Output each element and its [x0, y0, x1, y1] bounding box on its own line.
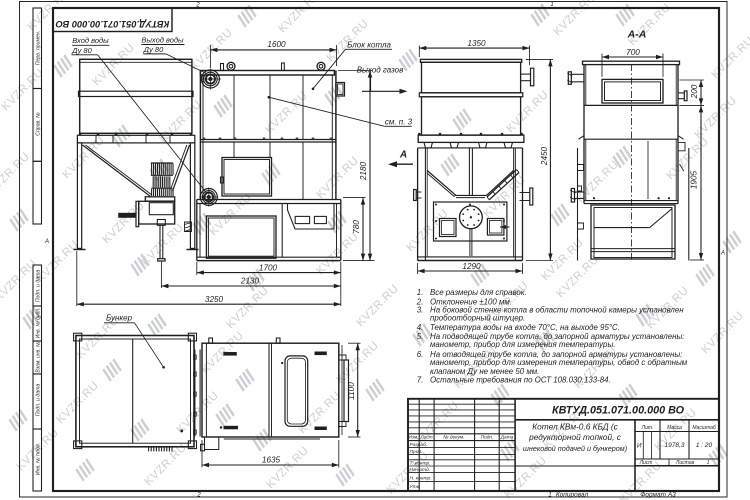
- svg-text:Котел КВм-0,6 КБД (с: Котел КВм-0,6 КБД (с: [532, 422, 618, 432]
- svg-text:И: И: [637, 443, 642, 450]
- svg-text:7.: 7.: [417, 376, 424, 385]
- svg-text:редукторной топкой, с: редукторной топкой, с: [528, 432, 622, 442]
- svg-text:А: А: [44, 239, 49, 245]
- svg-text:4.: 4.: [417, 323, 424, 332]
- svg-text:Масштаб: Масштаб: [692, 425, 716, 431]
- svg-text:Нач.отд.: Нач.отд.: [410, 467, 431, 473]
- svg-text:Ду 80: Ду 80: [71, 46, 92, 55]
- svg-text:Изм.: Изм.: [408, 435, 418, 441]
- svg-text:см. п. 3: см. п. 3: [385, 118, 413, 127]
- svg-text:1905: 1905: [689, 170, 698, 189]
- svg-text:Справ. №: Справ. №: [36, 112, 42, 136]
- svg-text:1635: 1635: [262, 456, 281, 465]
- svg-text:1: 1: [707, 460, 710, 466]
- svg-text:6.: 6.: [417, 350, 424, 359]
- svg-text:2: 2: [195, 3, 200, 9]
- svg-text:Вход воды: Вход воды: [72, 36, 109, 45]
- svg-text:Лит.: Лит.: [641, 425, 654, 431]
- svg-text:Бункер: Бункер: [106, 314, 133, 323]
- svg-text:манометр, прибор для измерения: манометр, прибор для измерения температу…: [430, 340, 615, 349]
- svg-text:Т. контр.: Т. контр.: [410, 461, 431, 467]
- svg-text:1978,3: 1978,3: [665, 442, 685, 449]
- svg-text:Утв.: Утв.: [410, 484, 421, 490]
- svg-text:700: 700: [626, 48, 640, 57]
- svg-text:Инв. № подл.: Инв. № подл.: [36, 443, 42, 475]
- svg-text:Остальные требования по ОСТ 10: Остальные требования по ОСТ 108.030.133-…: [430, 376, 611, 385]
- svg-text:Инв. № дубл.: Инв. № дубл.: [36, 308, 42, 339]
- svg-text:2130: 2130: [240, 277, 260, 286]
- svg-text:Ду 80: Ду 80: [143, 45, 164, 54]
- svg-text:шнековой подачей и бункером): шнековой подачей и бункером): [523, 444, 627, 453]
- svg-text:Выход воды: Выход воды: [141, 36, 184, 45]
- svg-text:Перв. примен.: Перв. примен.: [36, 31, 42, 65]
- svg-text:Подп.: Подп.: [481, 435, 494, 441]
- svg-text:пробоотборный штуцер.: пробоотборный штуцер.: [430, 314, 525, 323]
- svg-text:1.: 1.: [417, 288, 424, 297]
- svg-text:1100: 1100: [347, 382, 356, 400]
- svg-text:3250: 3250: [205, 295, 224, 304]
- svg-text:1700: 1700: [259, 263, 278, 272]
- svg-text:2180: 2180: [359, 161, 368, 181]
- svg-text:1350: 1350: [467, 39, 486, 48]
- svg-text:Пров.: Пров.: [410, 449, 423, 455]
- svg-text:1: 1: [548, 493, 551, 499]
- svg-text:200: 200: [690, 84, 699, 99]
- svg-text:А: А: [720, 251, 725, 257]
- svg-text:Копировал: Копировал: [556, 492, 589, 499]
- svg-text:Все размеры для справок.: Все размеры для справок.: [430, 288, 527, 297]
- svg-text:Температура воды на входе 70°С: Температура воды на входе 70°С, на выход…: [430, 323, 620, 332]
- svg-text:№ докум.: № докум.: [443, 435, 464, 441]
- svg-text:2: 2: [196, 493, 201, 499]
- svg-text:А-А: А-А: [627, 29, 647, 41]
- svg-text:Подп. и дата: Подп. и дата: [36, 384, 42, 417]
- svg-text:5.: 5.: [417, 332, 424, 341]
- svg-text:3.: 3.: [417, 306, 424, 315]
- svg-text:А: А: [399, 150, 407, 161]
- svg-text:манометр, прибор для измерения: манометр, прибор для измерения температу…: [430, 358, 688, 367]
- svg-text:1: 1: [550, 2, 553, 8]
- svg-text:Лист: Лист: [639, 460, 653, 466]
- svg-text:Дата: Дата: [500, 435, 514, 441]
- svg-text:Подп. и дата: Подп. и дата: [36, 270, 42, 303]
- svg-text:780: 780: [352, 220, 361, 234]
- svg-text:Разраб.: Разраб.: [410, 442, 428, 448]
- svg-text:Блок котла: Блок котла: [347, 41, 391, 50]
- svg-text:Взам. инв. №: Взам. инв. №: [36, 341, 42, 373]
- svg-text:1 : 20: 1 : 20: [696, 442, 713, 449]
- svg-text:Выход газов: Выход газов: [357, 65, 404, 74]
- svg-text:Н. контр.: Н. контр.: [410, 476, 432, 482]
- svg-text:1600: 1600: [267, 40, 286, 49]
- svg-text:Лист: Лист: [419, 435, 432, 441]
- svg-text:2450: 2450: [540, 146, 549, 166]
- svg-text:Масса: Масса: [667, 425, 682, 431]
- svg-text:КВТУД.051.071.00.000 ВО: КВТУД.051.071.00.000 ВО: [55, 19, 169, 29]
- svg-text:1290: 1290: [462, 262, 481, 271]
- svg-text:КВТУД.051.071.00.000 ВО: КВТУД.051.071.00.000 ВО: [552, 405, 685, 417]
- svg-text:Листов: Листов: [675, 460, 695, 466]
- svg-text:Формат А3: Формат А3: [640, 492, 676, 499]
